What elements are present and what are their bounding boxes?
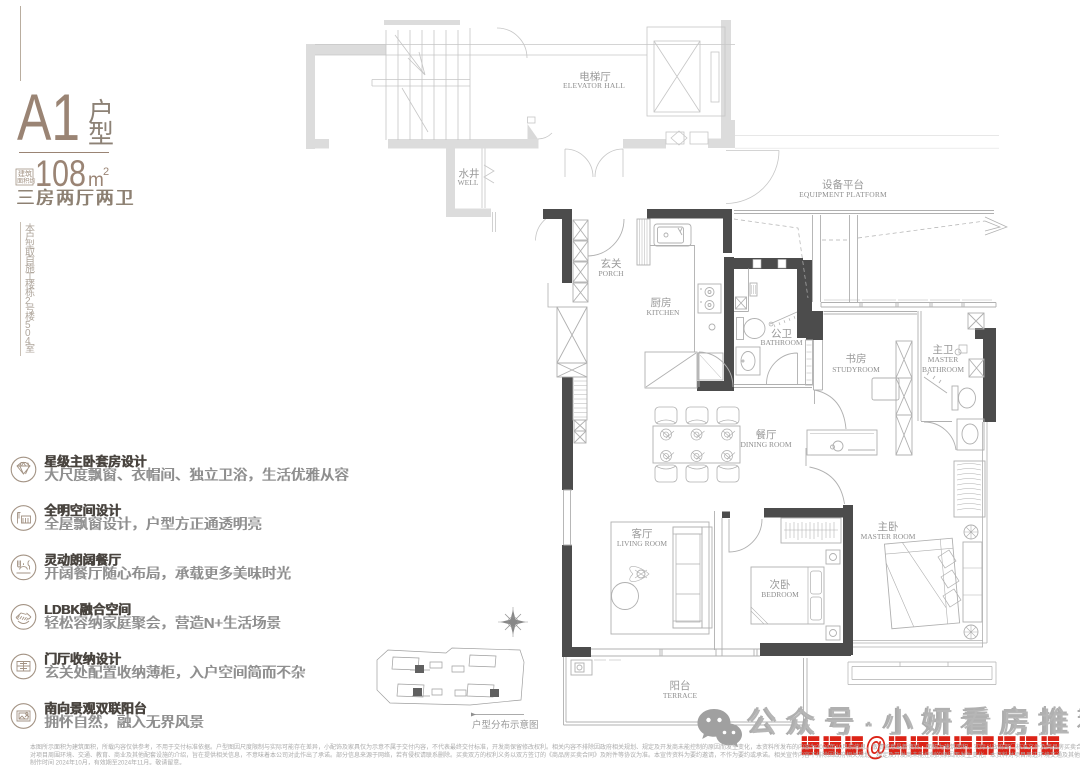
svg-text:MASTER ROOM: MASTER ROOM bbox=[861, 532, 916, 541]
svg-text:大尺度飘窗、衣帽间、独立卫浴，生活优雅从容: 大尺度飘窗、衣帽间、独立卫浴，生活优雅从容 bbox=[45, 466, 350, 484]
svg-text:轻松容纳家庭聚会，营造N+生活场景: 轻松容纳家庭聚会，营造N+生活场景 bbox=[45, 615, 281, 632]
svg-text:WELL: WELL bbox=[458, 178, 479, 187]
svg-text:BATHROOM: BATHROOM bbox=[922, 365, 964, 374]
svg-text:PORCH: PORCH bbox=[598, 269, 624, 278]
svg-text:MASTER: MASTER bbox=[928, 355, 958, 364]
svg-text:户型分布示意图: 户型分布示意图 bbox=[472, 719, 539, 731]
svg-text:2: 2 bbox=[103, 166, 109, 178]
svg-text:EQUIPMENT PLATFORM: EQUIPMENT PLATFORM bbox=[799, 190, 887, 199]
svg-text:型: 型 bbox=[88, 119, 114, 149]
svg-text:ELEVATOR HALL: ELEVATOR HALL bbox=[563, 81, 625, 90]
svg-text:开阔餐厅随心布局，承载更多美味时光: 开阔餐厅随心布局，承载更多美味时光 bbox=[45, 566, 292, 583]
svg-text:三房两厅两卫: 三房两厅两卫 bbox=[17, 188, 136, 208]
svg-text:全明空间设计: 全明空间设计 bbox=[44, 503, 122, 518]
svg-text:制作时间 2024年10月，有效期至2024年11月。敬请留: 制作时间 2024年10月，有效期至2024年11月。敬请留意。 bbox=[30, 759, 185, 767]
svg-text:TERRACE: TERRACE bbox=[663, 691, 698, 700]
svg-text:KITCHEN: KITCHEN bbox=[647, 308, 680, 317]
svg-text:灵动朗阔餐厅: 灵动朗阔餐厅 bbox=[45, 553, 122, 568]
svg-text:A1: A1 bbox=[17, 80, 80, 154]
svg-text:全屋飘窗设计，户型方正通透明亮: 全屋飘窗设计，户型方正通透明亮 bbox=[45, 515, 263, 533]
svg-text:BEDROOM: BEDROOM bbox=[761, 590, 799, 599]
svg-text:建筑: 建筑 bbox=[18, 169, 32, 178]
svg-text:DINING ROOM: DINING ROOM bbox=[740, 440, 791, 449]
svg-text:STUDYROOM: STUDYROOM bbox=[832, 365, 880, 374]
svg-text:拥怀自然，融入无界风景: 拥怀自然，融入无界风景 bbox=[45, 714, 205, 731]
svg-text:LIVING ROOM: LIVING ROOM bbox=[617, 539, 668, 548]
svg-text:本图所示面积为建筑面积，所载内容仅供参考，不用于交付标准依据: 本图所示面积为建筑面积，所载内容仅供参考，不用于交付标准依据。户型图因尺度限制与… bbox=[30, 743, 1080, 751]
svg-text:玄关处配置收纳薄柜，入户空间简而不杂: 玄关处配置收纳薄柜，入户空间简而不杂 bbox=[45, 665, 306, 682]
svg-text:星级主卧套房设计: 星级主卧套房设计 bbox=[45, 454, 148, 469]
svg-text:LDBK融合空间: LDBK融合空间 bbox=[45, 602, 132, 617]
svg-text:南向景观双联阳台: 南向景观双联阳台 bbox=[45, 701, 148, 716]
svg-text:对项目周围环境、交通、教育、商业及其他配套设施的介绍，旨在提: 对项目周围环境、交通、教育、商业及其他配套设施的介绍，旨在提供相关信息，不意味着… bbox=[30, 751, 1080, 759]
svg-text:面积约: 面积约 bbox=[17, 177, 36, 185]
svg-text:书房: 书房 bbox=[846, 352, 867, 365]
svg-text:门厅收纳设计: 门厅收纳设计 bbox=[45, 652, 122, 667]
svg-text:BATHROOM: BATHROOM bbox=[760, 338, 802, 347]
